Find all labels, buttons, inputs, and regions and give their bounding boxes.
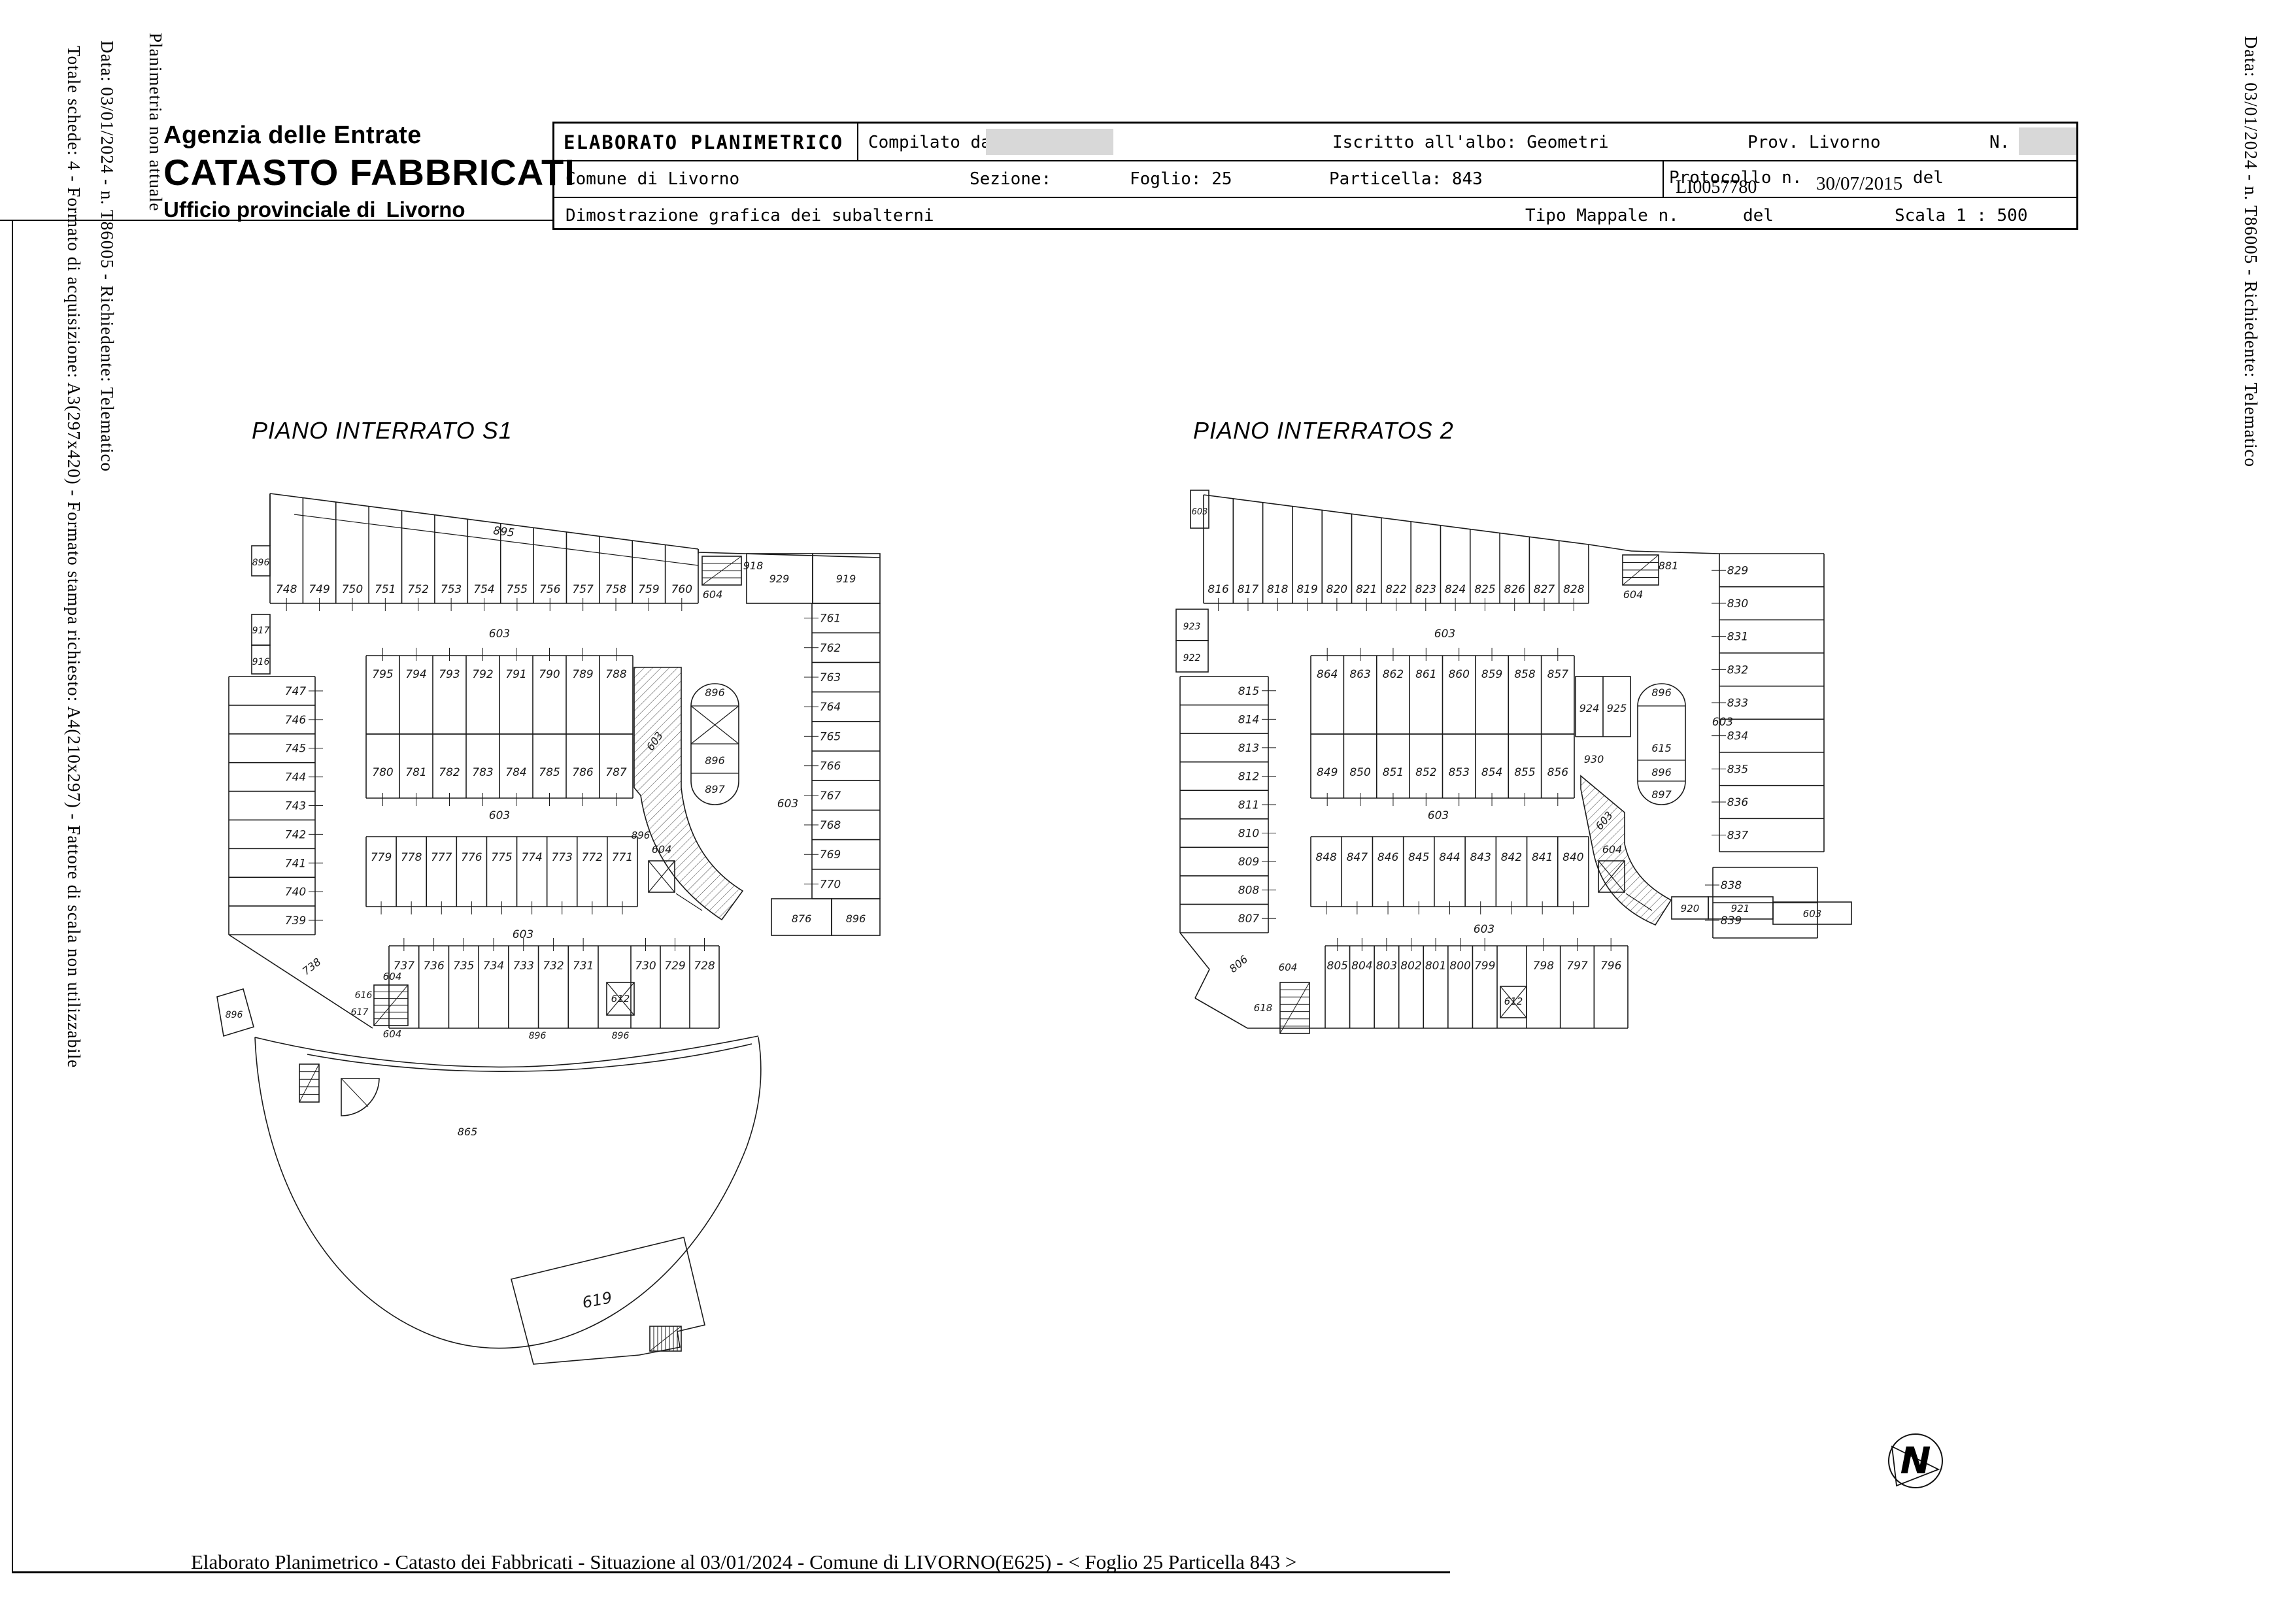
plan-label: 603 <box>1192 507 1208 517</box>
wall-line <box>294 514 698 565</box>
plan-label: 612 <box>1504 996 1523 1007</box>
stall-number: 773 <box>551 851 572 864</box>
stall-number: 838 <box>1721 879 1742 892</box>
stall-number: 787 <box>605 766 627 779</box>
plan-label: 925 <box>1607 702 1627 714</box>
stall-number: 829 <box>1727 564 1748 577</box>
foglio-label: Foglio: 25 <box>1130 169 1232 189</box>
plan-label: 897 <box>705 783 725 795</box>
stall-number: 795 <box>372 668 393 681</box>
stall-number: 757 <box>572 583 594 596</box>
stall-number: 824 <box>1445 583 1466 596</box>
stall-number: 832 <box>1727 663 1748 677</box>
plan-label: 603 <box>1712 716 1733 729</box>
stall-number: 774 <box>521 851 542 864</box>
stall-number: 840 <box>1562 851 1583 864</box>
stall-number: 801 <box>1425 960 1446 973</box>
stall-number: 746 <box>285 714 307 727</box>
stall-number: 772 <box>582 851 603 864</box>
table-col-divider <box>857 124 858 160</box>
plan-label: 896 <box>705 754 725 767</box>
plan-label: 922 <box>1183 653 1201 663</box>
plan-label: 895 <box>492 524 515 540</box>
stall-number: 826 <box>1504 583 1526 596</box>
plan-label: 618 <box>1254 1002 1273 1014</box>
stall-number: 845 <box>1408 851 1429 864</box>
stall-number: 820 <box>1326 583 1347 596</box>
stall-number: 831 <box>1727 631 1748 644</box>
plan-label: 615 <box>1651 742 1672 754</box>
iscritto-label: Iscritto all'albo: Geometri <box>1332 133 1609 152</box>
stall-number: 802 <box>1400 960 1421 973</box>
plan-label: 924 <box>1579 702 1600 714</box>
plan-label: 881 <box>1659 560 1679 572</box>
del-label-1: del <box>1913 168 1944 188</box>
stall-number: 785 <box>539 766 560 779</box>
stall-number: 776 <box>461 851 482 864</box>
stall-number: 830 <box>1727 597 1748 611</box>
wall-line <box>1204 495 1589 544</box>
logo-line2: CATASTO FABBRICATI <box>163 151 575 193</box>
stall-number: 729 <box>664 960 685 973</box>
stall-number: 756 <box>539 583 561 596</box>
stall-number: 819 <box>1296 583 1317 596</box>
stall-number: 798 <box>1533 960 1555 973</box>
plan-label: 876 <box>792 912 812 925</box>
stall-number: 851 <box>1383 766 1404 779</box>
plan-label: 604 <box>703 588 723 601</box>
stall-number: 823 <box>1415 583 1436 596</box>
stall-number: 749 <box>309 583 329 596</box>
plan-label: 919 <box>836 573 856 585</box>
logo-office: Ufficio provinciale di <box>163 197 376 222</box>
stall-number: 793 <box>439 668 460 681</box>
plan-label: 921 <box>1731 903 1750 914</box>
stall-number: 770 <box>820 878 841 891</box>
stall-number: 855 <box>1514 766 1535 779</box>
stall-number: 804 <box>1351 960 1372 973</box>
stall-number: 844 <box>1439 851 1460 864</box>
stall-number: 810 <box>1238 828 1259 841</box>
stall-number: 863 <box>1349 668 1370 681</box>
stall-number: 761 <box>820 612 841 626</box>
plan-label: 865 <box>458 1126 478 1138</box>
stall-number: 822 <box>1385 583 1406 596</box>
side-text-left-middle: Data: 03/01/2024 - n. T86005 - Richieden… <box>97 41 117 472</box>
stall-number: 837 <box>1727 829 1749 843</box>
scala-label: Scala 1 : 500 <box>1895 206 2028 226</box>
stall-number: 728 <box>694 960 715 973</box>
wall-line <box>1195 998 1247 1028</box>
stall-number: 813 <box>1238 742 1259 755</box>
stall-number: 847 <box>1347 851 1368 864</box>
stall-number: 834 <box>1727 730 1748 743</box>
plan-label: 896 <box>1651 686 1672 699</box>
stall-number: 778 <box>401 851 422 864</box>
stall-number: 794 <box>405 668 426 681</box>
plan-title-s2: PIANO INTERRATOS 2 <box>1193 417 1454 444</box>
plan-label: 896 <box>705 686 725 699</box>
wall-line <box>1280 982 1309 1033</box>
stall-number: 814 <box>1238 713 1259 726</box>
stall-number: 792 <box>472 668 493 681</box>
stall-number: 786 <box>572 766 594 779</box>
stall-number: 862 <box>1383 668 1404 681</box>
stall-number: 799 <box>1474 960 1495 973</box>
table-row-divider <box>554 160 2076 161</box>
cadastral-document: { "page": { "side_texts": { "left_outer"… <box>0 0 2296 1623</box>
stall-number: 783 <box>472 766 493 779</box>
stall-number: 825 <box>1474 583 1495 596</box>
plan-label: 916 <box>252 657 270 667</box>
plan-label: 896 <box>1651 766 1672 778</box>
stall-number: 791 <box>505 668 526 681</box>
side-text-left-outer: Totale schede: 4 - Formato di acquisizio… <box>63 46 84 1068</box>
plan-label: 603 <box>489 809 510 822</box>
stall-number: 821 <box>1356 583 1377 596</box>
plan-title-s1: PIANO INTERRATO S1 <box>252 417 513 444</box>
floor-plan-s2: 6038168178188198208218228238248258268278… <box>1170 480 1909 1075</box>
stall-number: 762 <box>820 642 841 655</box>
stall-number: 843 <box>1470 851 1491 864</box>
plan-label: 604 <box>383 1028 402 1040</box>
n-label: N. <box>1989 133 2010 152</box>
wall-line <box>270 494 698 549</box>
plan-label: 897 <box>1651 788 1672 801</box>
stall-number: 815 <box>1238 685 1259 698</box>
plan-label: 603 <box>1428 809 1449 822</box>
header-table: ELABORATO PLANIMETRICO Compilato da: Isc… <box>552 122 2078 230</box>
stall-number: 752 <box>408 583 429 596</box>
stall-number: 779 <box>371 851 392 864</box>
stall-number: 747 <box>285 685 307 698</box>
stall-number: 777 <box>431 851 452 864</box>
plan-label: 896 <box>529 1031 547 1041</box>
stall-number: 811 <box>1238 799 1259 812</box>
stall-number: 744 <box>285 771 306 784</box>
stall-number: 754 <box>473 583 494 596</box>
stall-number: 745 <box>285 743 306 756</box>
stall-number: 853 <box>1448 766 1469 779</box>
stall-number: 816 <box>1207 583 1229 596</box>
stall-number: 857 <box>1547 668 1569 681</box>
stall-number: 807 <box>1238 912 1260 926</box>
wall-line <box>1589 544 1631 551</box>
stall-number: 766 <box>820 760 841 773</box>
stall-number: 732 <box>543 960 564 973</box>
sezione-label: Sezione: <box>970 169 1051 189</box>
stall-number: 775 <box>491 851 512 864</box>
wall-line <box>1195 969 1209 998</box>
stall-number: 764 <box>820 701 841 714</box>
side-text-left-inner: Planimetria non attuale <box>145 33 165 211</box>
stall-number: 768 <box>820 819 841 832</box>
area-curve <box>255 1037 761 1348</box>
stall-number: 742 <box>285 828 306 841</box>
header-band-rule <box>0 220 552 221</box>
ramp-hatch <box>634 667 743 920</box>
stall-number: 842 <box>1501 851 1522 864</box>
stall-number: 860 <box>1448 668 1469 681</box>
plan-label: 604 <box>383 971 402 982</box>
stall-number: 758 <box>605 583 627 596</box>
stall-number: 864 <box>1317 668 1338 681</box>
stall-number: 790 <box>539 668 560 681</box>
stall-number: 781 <box>405 766 426 779</box>
stall-number: 800 <box>1449 960 1470 973</box>
dimostrazione-label: Dimostrazione grafica dei subalterni <box>566 206 934 226</box>
agency-logo: Agenzia delle Entrate CATASTO FABBRICATI… <box>163 122 575 222</box>
stall-number: 827 <box>1534 583 1555 596</box>
plan-label: 617 <box>351 1007 369 1018</box>
stall-number: 736 <box>423 960 445 973</box>
plan-label: 896 <box>226 1010 243 1020</box>
stall-number: 771 <box>612 851 633 864</box>
stall-number: 755 <box>507 583 528 596</box>
stall-number: 797 <box>1566 960 1588 973</box>
logo-city: Livorno <box>386 197 465 222</box>
plan-label: 603 <box>513 928 533 941</box>
stall-number: 767 <box>820 790 841 803</box>
stall-number: 730 <box>635 960 656 973</box>
table-row-divider <box>554 197 2076 198</box>
plan-label: 929 <box>769 573 790 585</box>
plan-label: 603 <box>489 627 510 641</box>
plan-label: 896 <box>632 829 650 841</box>
wall-line <box>299 1064 319 1102</box>
plan-label: 603 <box>1434 627 1455 641</box>
logo-line3: Ufficio provinciale diLivorno <box>163 197 575 222</box>
stall-number: 769 <box>820 848 841 862</box>
stall-number: 835 <box>1727 763 1748 776</box>
stall-number: 788 <box>605 668 627 681</box>
plan-label: 604 <box>1279 962 1298 973</box>
particella-label: Particella: 843 <box>1329 169 1483 189</box>
stall-number: 782 <box>439 766 460 779</box>
stall-number: 858 <box>1514 668 1536 681</box>
plan-label: 806 <box>1227 953 1251 975</box>
stall-number: 763 <box>820 671 841 684</box>
stall-number: 854 <box>1481 766 1502 779</box>
stall-number: 856 <box>1547 766 1569 779</box>
plan-label: 603 <box>1803 908 1822 920</box>
stall-number: 753 <box>441 583 462 596</box>
stall-number: 861 <box>1415 668 1436 681</box>
plan-label: 896 <box>252 558 270 568</box>
tipo-mappale-label: Tipo Mappale n. <box>1525 206 1679 226</box>
plan-label: 616 <box>355 990 373 1001</box>
floor-plan-s1: 7487497507517527537547557567577587597608… <box>216 480 968 1428</box>
stall-number: 780 <box>372 766 393 779</box>
plan-label: 920 <box>1681 903 1700 914</box>
table-title: ELABORATO PLANIMETRICO <box>564 131 843 154</box>
stall-number: 836 <box>1727 796 1749 809</box>
stall-number: 833 <box>1727 697 1748 710</box>
plan-label: 604 <box>1623 588 1644 601</box>
plan-label: 896 <box>846 912 866 925</box>
stall-number: 805 <box>1327 960 1348 973</box>
table-col-divider <box>1663 160 1664 197</box>
stall-number: 817 <box>1238 583 1259 596</box>
stall-number: 841 <box>1532 851 1553 864</box>
stall-number: 828 <box>1563 583 1585 596</box>
plan-label: 619 <box>581 1288 613 1312</box>
plan-label: 612 <box>611 993 630 1005</box>
stall-number: 849 <box>1317 766 1338 779</box>
stall-number: 848 <box>1315 851 1337 864</box>
stall-number: 739 <box>285 914 306 928</box>
wall-line <box>1180 933 1209 969</box>
comune-label: Comune di Livorno <box>566 169 739 189</box>
stall-number: 760 <box>671 583 692 596</box>
compilato-label: Compilato da: <box>868 133 1002 152</box>
stall-number: 808 <box>1238 884 1260 897</box>
area-curve <box>255 1036 758 1067</box>
stall-number: 812 <box>1238 770 1259 783</box>
area-curve <box>307 1044 752 1071</box>
stall-number: 852 <box>1415 766 1436 779</box>
side-text-right: Data: 03/01/2024 - n. T86005 - Richieden… <box>2240 36 2261 467</box>
stall-number: 809 <box>1238 856 1259 869</box>
logo-line1: Agenzia delle Entrate <box>163 122 575 150</box>
wall-line <box>1631 551 1719 554</box>
stall-number: 859 <box>1481 668 1502 681</box>
stall-number: 750 <box>342 583 363 596</box>
del-label-2: del <box>1743 206 1774 226</box>
plan-label: 603 <box>1474 923 1494 936</box>
stall-number: 850 <box>1349 766 1370 779</box>
plan-label: 604 <box>1602 843 1623 856</box>
protocollo-number-overlap: LI0057780 <box>1676 177 1757 198</box>
stall-number: 741 <box>285 857 306 870</box>
wall-line <box>341 1079 368 1107</box>
stall-number: 784 <box>505 766 526 779</box>
stall-number: 734 <box>483 960 504 973</box>
plan-label: 738 <box>300 956 324 978</box>
stall-number: 731 <box>573 960 594 973</box>
north-letter: N <box>1900 1440 1931 1482</box>
plan-label: 917 <box>252 626 270 636</box>
left-page-rule <box>12 220 13 1573</box>
stall-number: 765 <box>820 730 841 743</box>
plan-label: 896 <box>612 1031 630 1041</box>
stall-number: 748 <box>276 583 297 596</box>
stall-number: 796 <box>1600 960 1622 973</box>
stall-number: 740 <box>285 886 306 899</box>
stall-number: 733 <box>513 960 533 973</box>
stall-number: 751 <box>375 583 396 596</box>
stall-number: 846 <box>1377 851 1399 864</box>
stall-number: 735 <box>453 960 474 973</box>
stall-number: 839 <box>1721 914 1742 928</box>
stall-number: 743 <box>285 800 306 813</box>
plan-label: 930 <box>1584 753 1604 765</box>
footer-text: Elaborato Planimetrico - Catasto dei Fab… <box>191 1550 1296 1574</box>
plan-label: 923 <box>1183 622 1201 632</box>
plan-label: 604 <box>652 843 672 856</box>
stall-number: 789 <box>572 668 593 681</box>
plan-label: 603 <box>777 797 798 811</box>
protocollo-date: 30/07/2015 <box>1816 173 1902 195</box>
north-arrow: N <box>1875 1424 1960 1509</box>
prov-label: Prov. Livorno <box>1747 133 1881 152</box>
stall-number: 803 <box>1376 960 1397 973</box>
redacted-n <box>2019 127 2076 155</box>
redacted-compilato <box>986 129 1113 155</box>
stall-number: 759 <box>638 583 659 596</box>
stall-number: 818 <box>1267 583 1289 596</box>
